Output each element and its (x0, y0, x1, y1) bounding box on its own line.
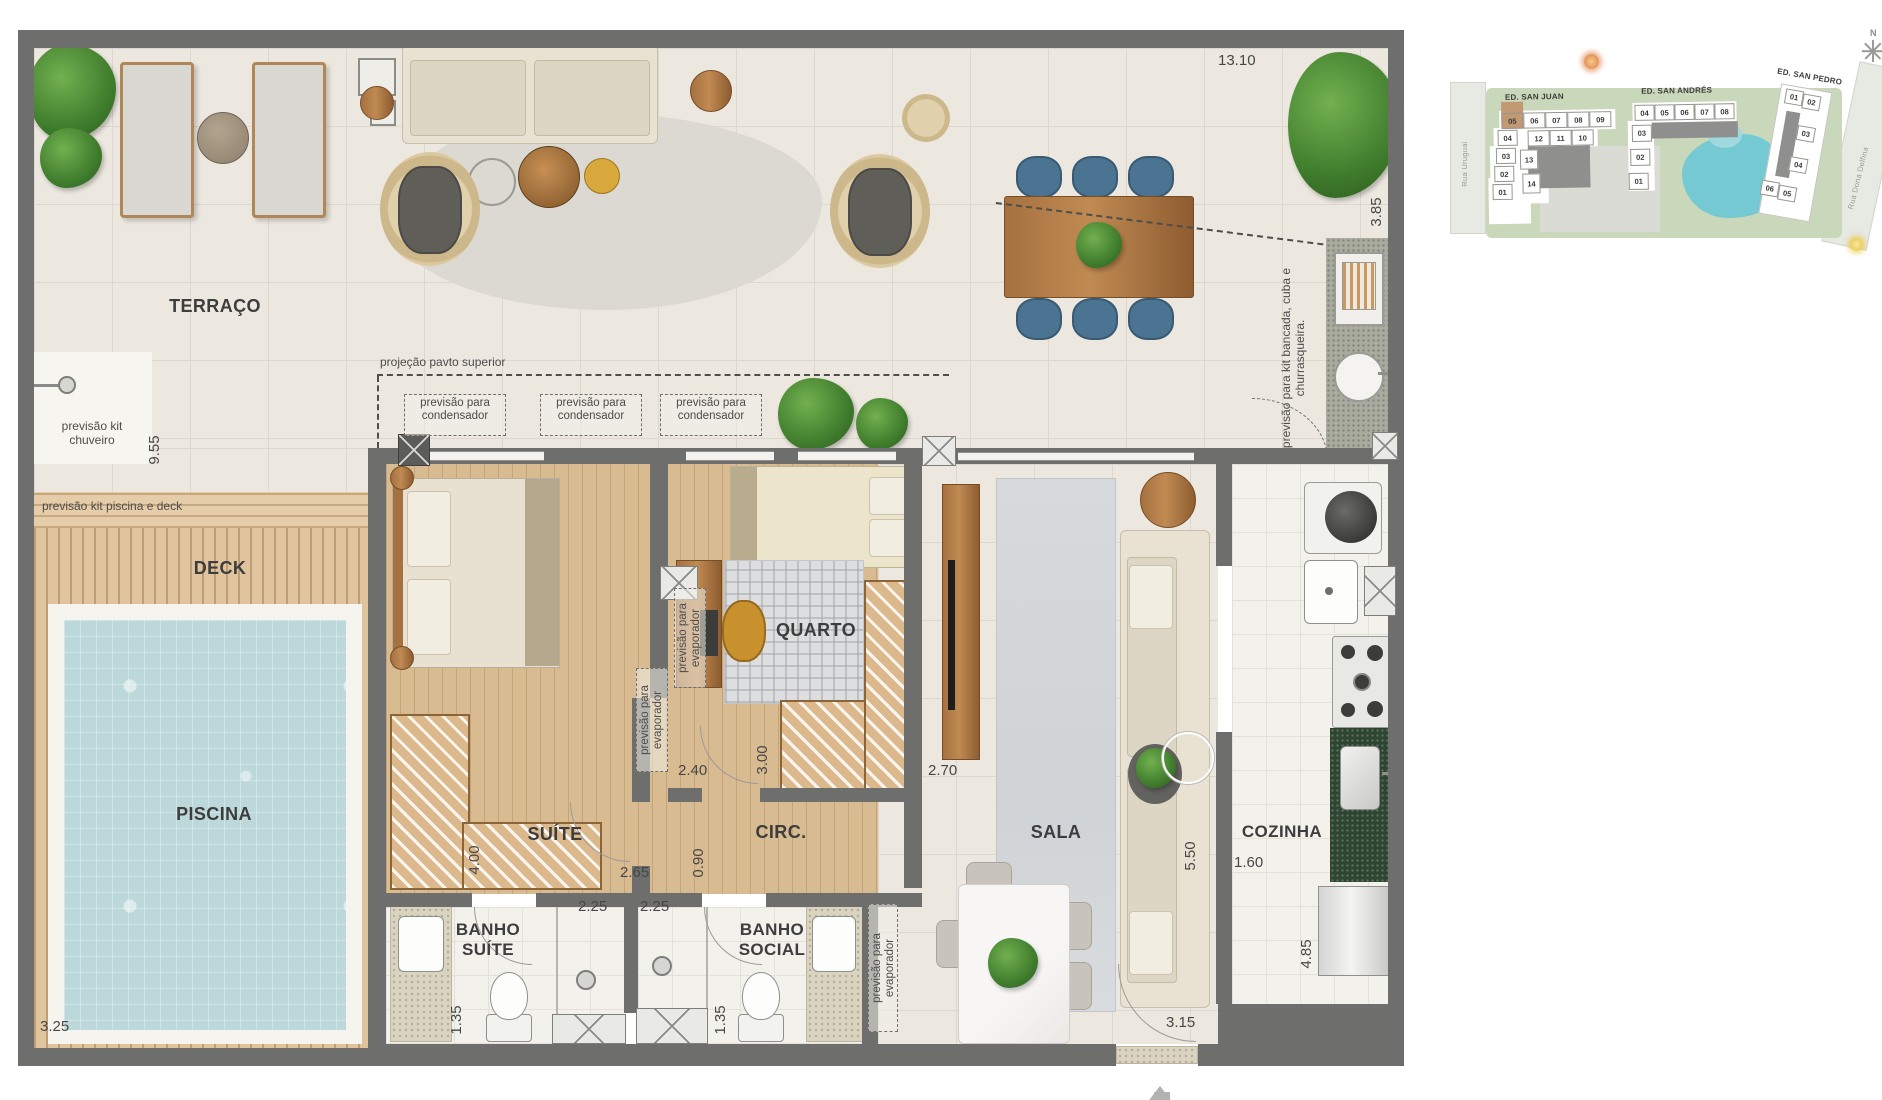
wall (18, 30, 34, 1066)
tv-icon (948, 560, 955, 710)
shaft-icon (1364, 566, 1396, 616)
wall (18, 30, 1404, 48)
site-key-plan: ED. SAN JUAN 05 06 07 08 09 04 12 11 10 … (1450, 26, 1882, 250)
washer-lid (1325, 491, 1377, 543)
side-table (690, 70, 732, 112)
shaft-icon (1372, 432, 1398, 460)
unit-cell: 02 (1494, 166, 1514, 182)
floor-plan-canvas: TERRAÇO DECK PISCINA SUÍTE QUARTO CIRC. … (0, 0, 1882, 1100)
dim-circ-top: 2.65 (620, 864, 649, 881)
toilet-bowl (490, 972, 528, 1020)
wall (1388, 30, 1404, 1008)
street-name-left: Rua Uruguai (1460, 124, 1469, 204)
wall (624, 907, 638, 1013)
dim-suite: 4.00 (466, 830, 483, 890)
side-table (360, 86, 394, 120)
bed-throw (731, 467, 757, 566)
dining-chair-blue (1128, 156, 1174, 198)
wall (1218, 1004, 1404, 1066)
shaft-icon (922, 436, 956, 466)
nightstand (390, 466, 414, 490)
armchair (848, 168, 912, 256)
side-table-marble (197, 112, 249, 164)
suite-closet (390, 714, 470, 890)
unit-cell-highlighted: 05 (1501, 113, 1523, 129)
room-label-deck: DECK (170, 558, 270, 579)
toilet-bowl (742, 972, 780, 1020)
dim-terrace-width: 13.10 (1218, 52, 1256, 69)
quarto-bed (730, 466, 922, 568)
sun-icon (1850, 238, 1863, 251)
wall (766, 893, 922, 907)
shaft-icon (552, 1014, 626, 1044)
unit-cell: 01 (1492, 184, 1512, 200)
dim-circ-width: 0.90 (690, 838, 707, 888)
pillow (1129, 565, 1173, 629)
dim-deck-bottom: 3.25 (40, 1018, 69, 1035)
unit-cell: 02 (1801, 93, 1821, 111)
wall (368, 448, 386, 1066)
grill-grate (1342, 262, 1376, 310)
pool-water (64, 620, 346, 1030)
wall (904, 464, 922, 888)
unit-cell: 03 (1796, 125, 1816, 143)
armchair (398, 166, 462, 254)
dim-cozinha-top: 1.60 (1234, 854, 1263, 871)
wall (18, 1048, 384, 1066)
dim-quarto-top: 2.40 (678, 762, 707, 779)
dim-bath-suite-w: 2.25 (578, 898, 607, 915)
pillow (407, 491, 451, 567)
dim-cozinha-h: 4.85 (1298, 926, 1315, 982)
compass-star (1862, 40, 1882, 62)
wall (1216, 732, 1232, 1004)
window (686, 451, 774, 461)
unit-cell: 08 (1714, 103, 1734, 119)
dim-bath-social-w: 2.25 (640, 898, 669, 915)
building-san-andres: ED. SAN ANDRÉS 04 05 06 07 08 03 02 01 (1627, 63, 1750, 215)
lounge-chair (252, 62, 326, 218)
lounge-chair (120, 62, 194, 218)
washing-machine (1304, 482, 1382, 554)
burner (1367, 645, 1383, 661)
note-evaporator: previsão para evaporador (674, 588, 706, 688)
wall (760, 788, 922, 802)
dining-chair-blue (1016, 156, 1062, 198)
unit-cell: 13 (1520, 149, 1538, 169)
building-san-juan: ED. SAN JUAN 05 06 07 08 09 04 12 11 10 … (1487, 81, 1630, 233)
unit-cell: 04 (1788, 156, 1808, 174)
unit-cell: 09 (1589, 111, 1611, 127)
dim-terrace-left: 9.55 (146, 420, 163, 480)
wall (536, 893, 702, 907)
unit-cell: 06 (1523, 112, 1545, 128)
unit-cell: 01 (1629, 173, 1649, 190)
shaft-icon (636, 1008, 708, 1044)
barbecue-sink (1334, 352, 1384, 402)
dim-terrace-right: 3.85 (1368, 182, 1385, 242)
window (798, 451, 896, 461)
shower-arm (34, 384, 60, 387)
room-label-suite: SUÍTE (500, 824, 610, 845)
wall (668, 788, 702, 802)
shower-icon (652, 956, 672, 976)
projection-line (377, 376, 379, 448)
dining-chair-blue (1072, 156, 1118, 198)
sliding-door (958, 452, 1194, 461)
unit-cell: 06 (1674, 104, 1694, 120)
unit-cell: 04 (1634, 105, 1654, 121)
burner (1341, 645, 1355, 659)
note-upper-floor-projection: projeção pavto superior (380, 356, 580, 370)
unit-cell: 08 (1567, 111, 1589, 127)
note-shower-kit: previsão kit chuveiro (44, 420, 140, 448)
suite-bed (392, 478, 560, 668)
note-evaporator: previsão para evaporador (636, 668, 668, 772)
dim-entry: 3.15 (1166, 1014, 1195, 1031)
note-condenser: previsão para condensador (660, 394, 762, 436)
fridge (1318, 886, 1392, 976)
room-label-circ: CIRC. (731, 822, 831, 843)
room-label-cozinha: COZINHA (1222, 822, 1342, 842)
note-barbecue-kit: previsão para kit bancada, cuba e churra… (1280, 248, 1316, 468)
coffee-table-small (584, 158, 620, 194)
headboard (393, 479, 403, 666)
burner (1367, 701, 1383, 717)
unit-cell: 05 (1777, 185, 1797, 203)
note-condenser: previsão para condensador (404, 394, 506, 436)
room-label-banho-suite: BANHO SUÍTE (428, 920, 548, 961)
building-name: ED. SAN ANDRÉS (1641, 86, 1712, 96)
rattan-pouf (902, 94, 950, 142)
sun-icon (1584, 54, 1599, 69)
room-label-quarto: QUARTO (756, 620, 876, 641)
shower-icon (58, 376, 76, 394)
entry-arrow-stem (1154, 1092, 1170, 1100)
burner (1353, 673, 1371, 691)
shaft-icon (398, 434, 430, 466)
cooktop (1332, 636, 1390, 728)
dim-bath-suite-h: 1.35 (448, 998, 465, 1042)
burner (1341, 703, 1355, 717)
unit-cell: 07 (1694, 104, 1714, 120)
room-label-banho-social: BANHO SOCIAL (712, 920, 832, 961)
dim-bath-social-h: 1.35 (712, 998, 729, 1042)
projection-line (377, 374, 949, 376)
wall (386, 1044, 932, 1066)
room-label-terraco: TERRAÇO (160, 296, 270, 317)
note-condenser: previsão para condensador (540, 394, 642, 436)
unit-cell: 10 (1572, 129, 1594, 145)
kitchen-sink (1340, 746, 1380, 810)
laundry-tank (1304, 560, 1358, 624)
sofa-cushion (534, 60, 650, 136)
dim-quarto-side: 3.00 (754, 732, 771, 788)
unit-cell: 03 (1496, 148, 1516, 164)
unit-cell: 04 (1498, 130, 1518, 146)
unit-cell: 07 (1545, 112, 1567, 128)
dining-chair-blue (1016, 298, 1062, 340)
dining-chair-blue (1072, 298, 1118, 340)
grill-icon (1334, 252, 1384, 326)
round-side-table (1140, 472, 1196, 528)
dim-quarto-bottom: 2.70 (928, 762, 957, 779)
wall (368, 893, 472, 907)
coffee-table-copper (518, 146, 580, 208)
wall (1198, 1044, 1218, 1066)
wall (1216, 464, 1232, 566)
shower-icon (576, 970, 596, 990)
shower-partition (556, 907, 558, 1017)
dining-chair-blue (1128, 298, 1174, 340)
drain (1325, 587, 1333, 595)
note-evaporator: previsão para evaporador (868, 904, 898, 1032)
decor-wheel-icon (1162, 732, 1214, 784)
unit-cell: 03 (1632, 125, 1652, 142)
room-label-piscina: PISCINA (154, 804, 274, 825)
bed-throw (525, 479, 559, 666)
building-name: ED. SAN JUAN (1505, 92, 1564, 102)
building-core (1652, 121, 1738, 138)
unit-cell: 05 (1654, 104, 1674, 120)
dim-sala: 5.50 (1182, 826, 1199, 886)
compass-north-label: N (1870, 28, 1877, 38)
compass-icon: N (1858, 28, 1882, 72)
pillow (407, 579, 451, 655)
wall (932, 1044, 1116, 1066)
unit-cell: 12 (1528, 130, 1550, 146)
unit-cell: 11 (1550, 130, 1572, 146)
sofa-cushion (410, 60, 526, 136)
nightstand (390, 646, 414, 670)
entry-threshold (1116, 1046, 1198, 1064)
unit-cell: 14 (1522, 173, 1540, 193)
room-label-sala: SALA (1006, 822, 1106, 843)
unit-cell: 02 (1630, 149, 1650, 166)
note-pool-deck-kit: previsão kit piscina e deck (42, 500, 302, 514)
